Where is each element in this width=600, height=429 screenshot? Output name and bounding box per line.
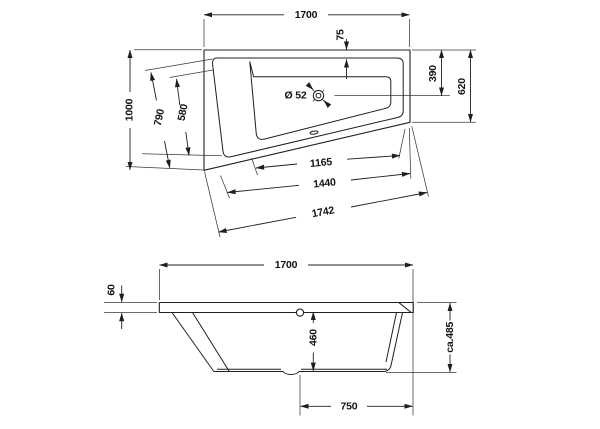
bathtub-dimension-drawing: 1700 75 390 620 1000 790 580 Ø 52 1165 1… xyxy=(0,0,600,429)
dim-label-seat-diag: 790 xyxy=(152,108,167,127)
dim-label-side-width: 1700 xyxy=(275,259,298,271)
side-view-tub-outline xyxy=(159,303,413,375)
drain-diameter-label: Ø 52 xyxy=(285,90,307,102)
dim-label-height: ca.485 xyxy=(444,321,456,352)
side-drain-hole xyxy=(296,309,303,316)
dim-label-drain-offset: 390 xyxy=(427,65,439,82)
side-view-dimension-lines xyxy=(122,265,450,406)
top-view-tub-outline xyxy=(204,50,410,170)
dim-label-right-side: 620 xyxy=(456,78,468,95)
dim-label-top-width: 1700 xyxy=(295,9,318,21)
top-view: 1700 75 390 620 1000 790 580 Ø 52 1165 1… xyxy=(123,9,476,237)
side-view: 1700 60 460 ca.485 750 xyxy=(104,259,457,416)
dim-label-drain-to-end: 750 xyxy=(341,400,358,412)
dim-label-depth: 460 xyxy=(307,329,319,346)
dim-label-left-side: 1000 xyxy=(123,98,135,121)
dim-label-rim-thickness: 60 xyxy=(106,284,118,296)
dim-label-rim-offset: 75 xyxy=(335,29,347,41)
dim-label-total-diag: 1742 xyxy=(311,204,336,220)
dim-label-inner-bottom: 1165 xyxy=(310,156,333,170)
side-view-extension-lines xyxy=(104,269,457,416)
dim-label-outer-bottom: 1440 xyxy=(313,176,337,190)
dim-label-basin-diag: 580 xyxy=(175,103,190,122)
technical-drawing-page: 1700 75 390 620 1000 790 580 Ø 52 1165 1… xyxy=(0,0,600,429)
